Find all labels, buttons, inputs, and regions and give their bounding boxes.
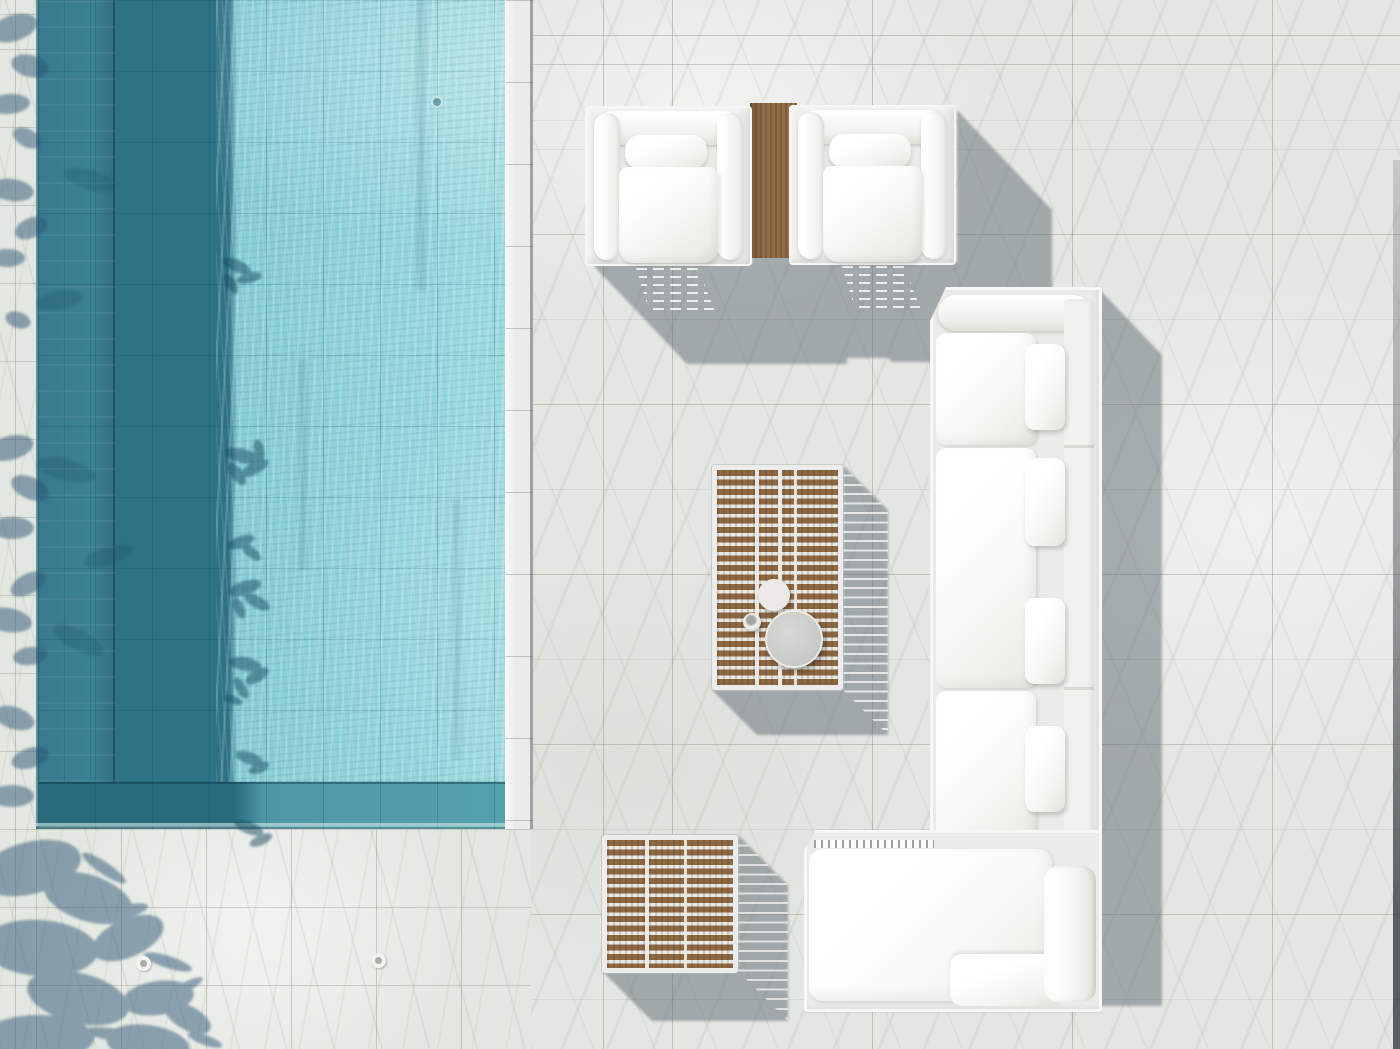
armchair-left	[585, 106, 752, 266]
sofa-lumbar-pillow	[1025, 726, 1065, 812]
coffee-table	[712, 465, 843, 690]
side-table	[602, 835, 738, 973]
armchair-seat-cushion	[823, 166, 922, 262]
deck-drain	[371, 953, 386, 968]
armchair-armrest-left	[594, 113, 620, 260]
sofa-lumbar-pillow	[1025, 598, 1065, 684]
armchair-armrest-right	[921, 112, 947, 259]
sectional-sofa-chaise	[804, 830, 1102, 1012]
chaise-corner-back-cushion	[1044, 866, 1096, 1002]
sofa-back-cushions	[1064, 299, 1094, 847]
sofa-lumbar-pillow	[1025, 344, 1065, 430]
pool-terrace-photo	[0, 0, 1400, 1049]
armchair-armrest-right	[717, 113, 743, 260]
armchair-right	[789, 105, 956, 265]
sofa-lumbar-pillow	[1025, 458, 1065, 546]
deck-drain	[136, 956, 151, 971]
coffee-table-shadow-slat-light	[843, 465, 888, 735]
sofa-seat-cushion	[936, 448, 1036, 688]
bowl	[758, 579, 790, 611]
armchair-lumbar-pillow	[829, 134, 911, 168]
armchair-lumbar-pillow	[625, 135, 707, 169]
armchair-armrest-left	[798, 112, 824, 259]
cup	[743, 613, 761, 631]
sofa-seat-cushion	[936, 333, 1036, 445]
armchair-seat-cushion	[619, 167, 718, 263]
chaise-base-slats	[814, 840, 934, 848]
serving-tray	[765, 610, 823, 668]
side-table-slats	[607, 840, 733, 968]
sofa-seat-cushion	[936, 691, 1036, 847]
